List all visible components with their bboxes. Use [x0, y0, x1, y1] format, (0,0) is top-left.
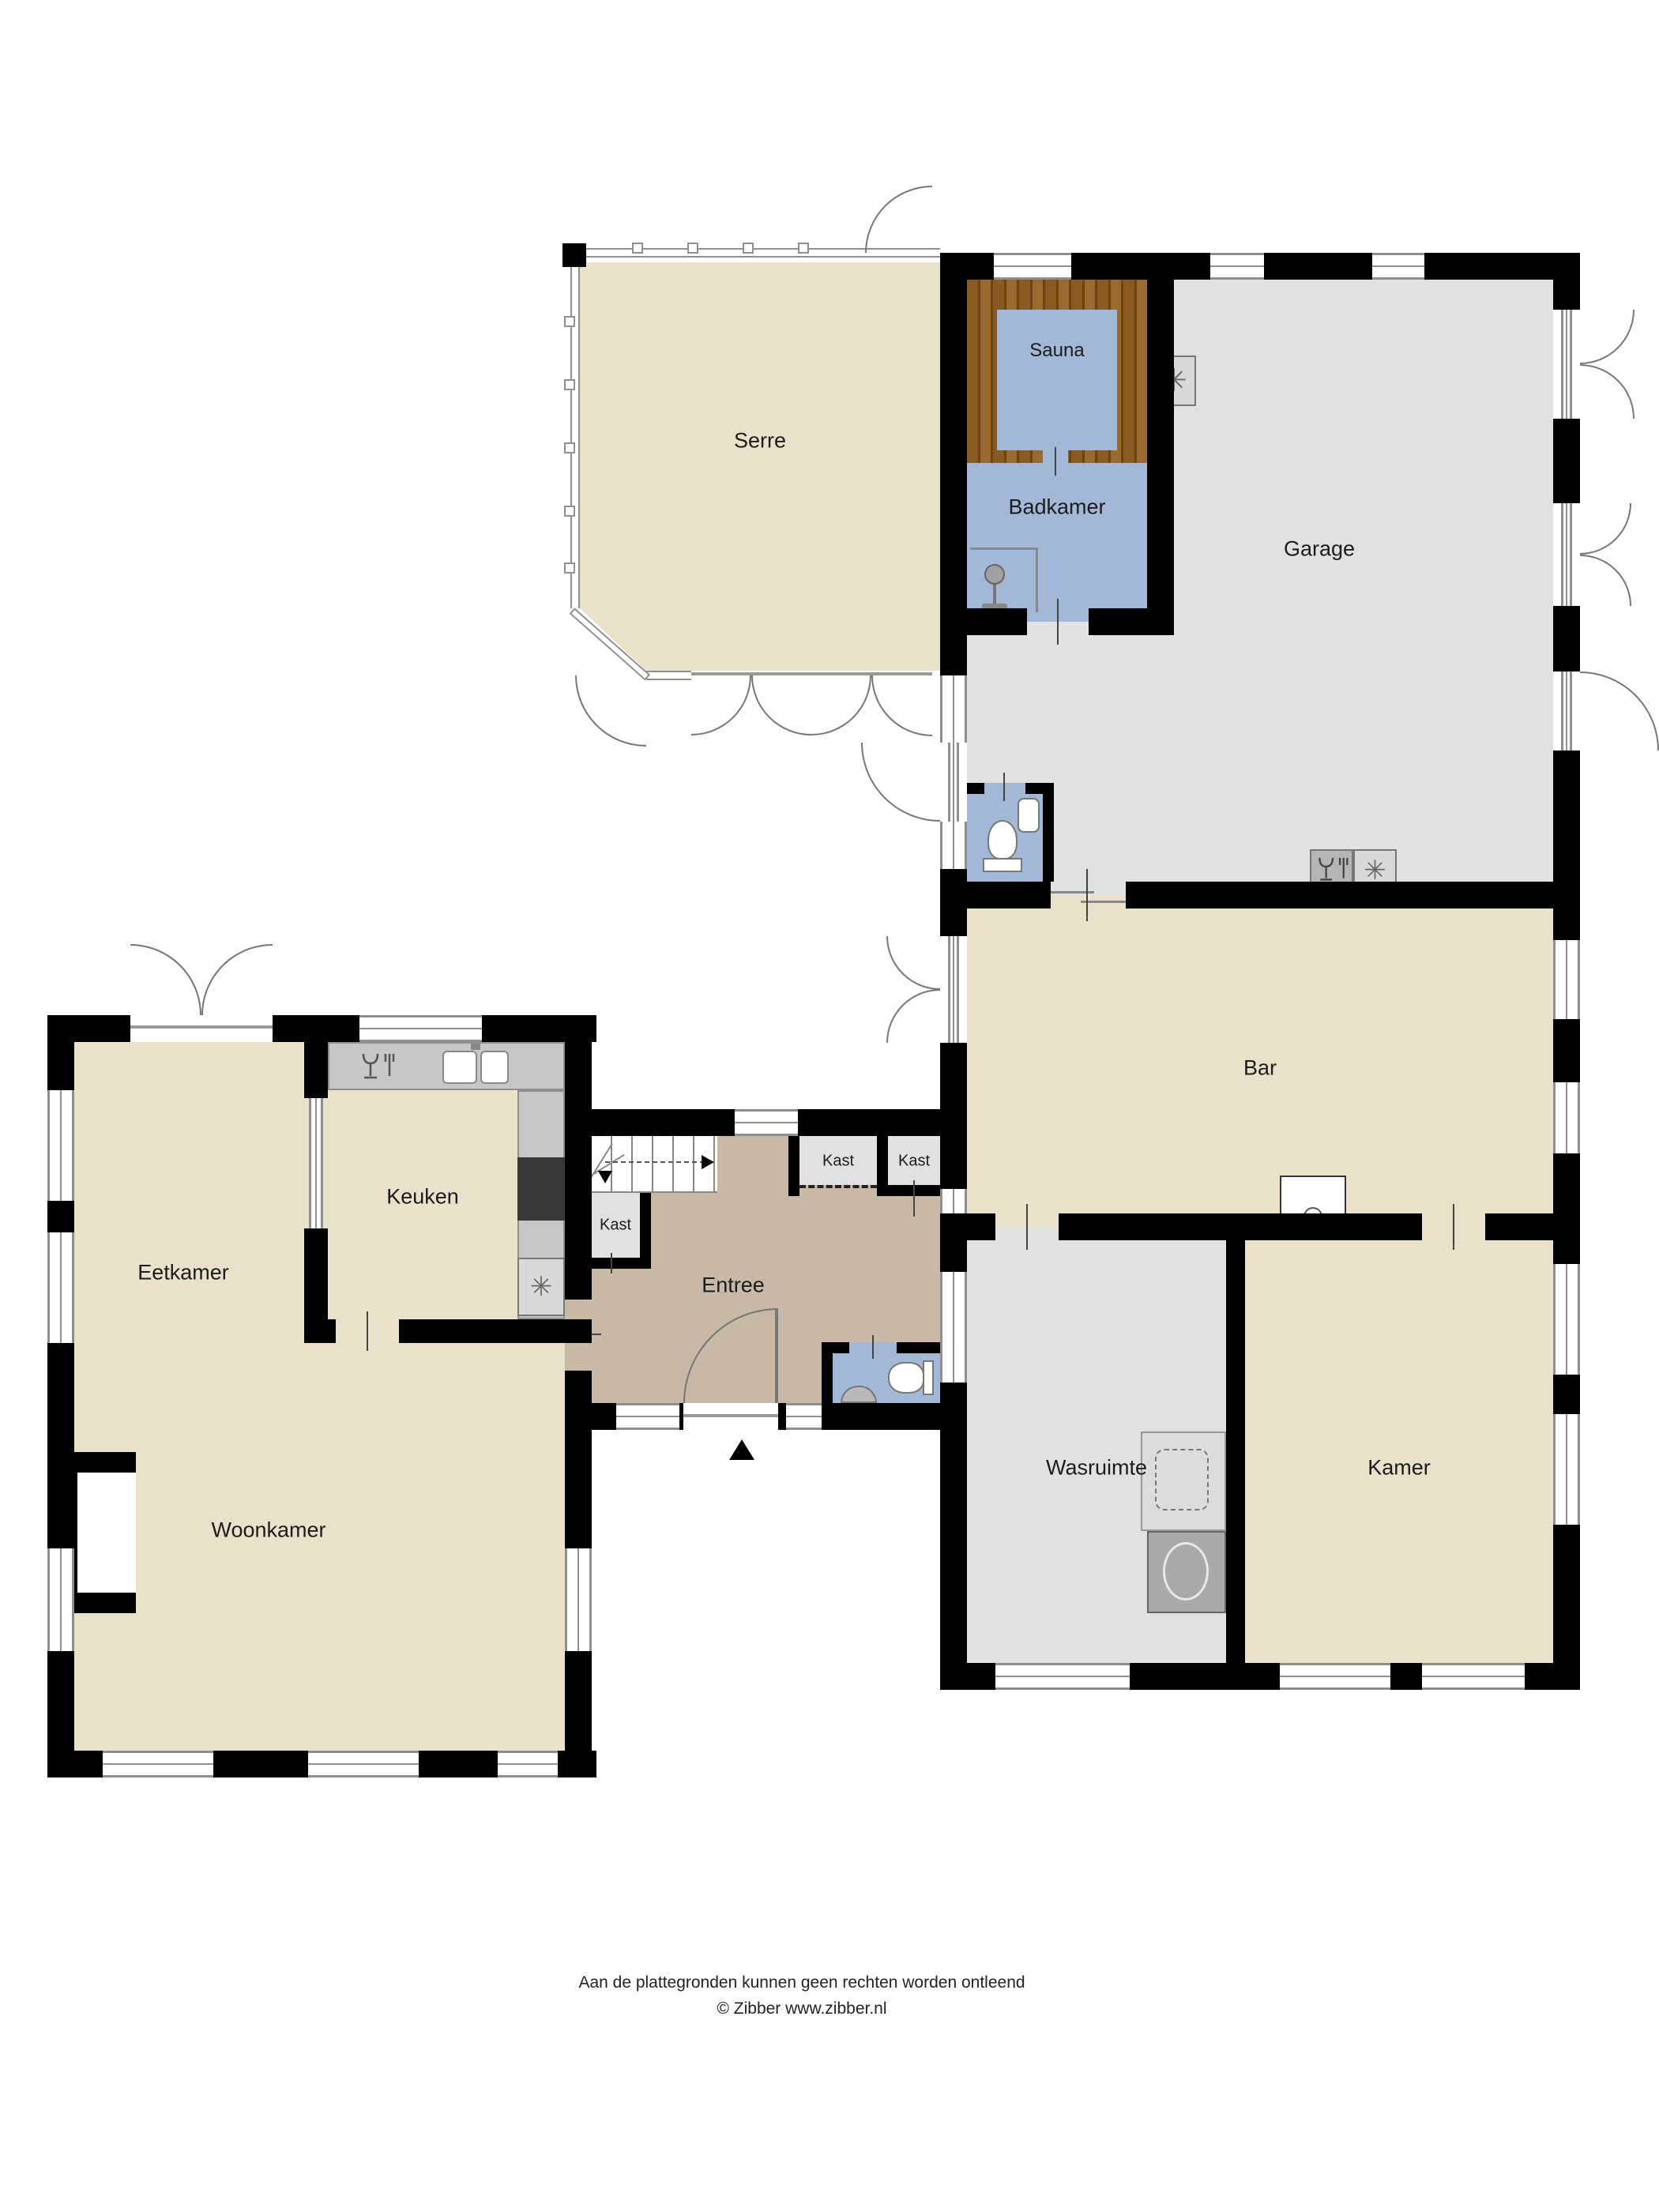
footer-line1: Aan de plattegronden kunnen geen rechten… [407, 1970, 1197, 1996]
wall [1553, 908, 1580, 940]
door-arc [861, 743, 940, 822]
window [1553, 1414, 1580, 1525]
wall [592, 1258, 651, 1269]
room-label-badkamer: Badkamer [1008, 495, 1105, 520]
wall [1059, 1213, 1422, 1240]
wall [822, 1403, 940, 1430]
door-arc [871, 675, 932, 736]
kitchen-sink-icon [442, 1051, 477, 1084]
toilet-icon [987, 820, 1018, 860]
toilet-icon [923, 1360, 934, 1395]
front-door-threshold [683, 1414, 778, 1417]
snowflake-icon: ✳ [1364, 857, 1386, 884]
wall [1043, 783, 1054, 882]
window [47, 1090, 74, 1201]
serre-mullion [564, 316, 575, 327]
wall [778, 1403, 786, 1430]
wall [940, 1663, 995, 1690]
window [1210, 253, 1264, 280]
door-glass [948, 743, 959, 822]
wall [1553, 1240, 1580, 1264]
wall [304, 1319, 336, 1343]
window [103, 1751, 213, 1777]
interior-window [309, 1098, 323, 1228]
toilet-icon [983, 858, 1022, 872]
door-tick [913, 1180, 915, 1217]
wall [1553, 419, 1580, 503]
window [1280, 1663, 1390, 1690]
door-tick [1055, 447, 1056, 476]
wall [967, 783, 984, 794]
wall [833, 1342, 849, 1353]
wall [1089, 608, 1147, 635]
wall [47, 1015, 130, 1042]
serre-mullion [743, 243, 754, 254]
serre-corner-post [562, 243, 586, 267]
kast-dashed-front [799, 1185, 877, 1188]
window [1372, 253, 1424, 280]
shower-icon [993, 585, 996, 605]
footer-line2: © Zibber www.zibber.nl [407, 1996, 1197, 2022]
room-sauna-floor [997, 310, 1117, 450]
room-label-kast-hall-left: Kast [822, 1153, 854, 1171]
serre-mullion [687, 243, 698, 254]
window [498, 1751, 558, 1777]
door-arc [886, 989, 940, 1043]
door-arc [130, 944, 201, 1015]
door-tick [872, 1335, 874, 1359]
wall [1485, 1213, 1580, 1240]
door-arc [1580, 364, 1635, 419]
wall [213, 1751, 308, 1777]
kitchen-sink-icon [480, 1051, 509, 1084]
serre-mullion [798, 243, 809, 254]
stairs-direction-arrow [598, 1171, 612, 1183]
wall [1553, 253, 1580, 310]
sink-icon [1018, 798, 1040, 833]
wall [640, 1193, 651, 1258]
wall [565, 1371, 592, 1403]
wall [1130, 1663, 1280, 1690]
snowflake-icon: ✳ [530, 1273, 553, 1300]
room-label-bar: Bar [1243, 1056, 1277, 1081]
window [47, 1548, 74, 1651]
door-arc [751, 675, 811, 735]
wall [304, 1042, 328, 1098]
room-label-entree: Entree [702, 1273, 765, 1298]
wall [1553, 606, 1580, 671]
door-arc [811, 675, 871, 735]
wall [592, 1109, 735, 1136]
wall [1553, 1375, 1580, 1414]
serre-mullion [632, 243, 643, 254]
wall [940, 908, 967, 936]
wall [565, 1651, 592, 1777]
entrance-marker-arrow [729, 1439, 754, 1460]
room-label-woonkamer: Woonkamer [211, 1518, 325, 1543]
wall [399, 1319, 592, 1343]
wall [1390, 1663, 1422, 1690]
wall [940, 253, 967, 675]
window [940, 1272, 967, 1382]
room-label-sauna: Sauna [1029, 340, 1084, 362]
wall [565, 1109, 592, 1300]
window [994, 253, 1071, 280]
room-label-kast-hall-right: Kast [898, 1153, 930, 1171]
wall [273, 1015, 359, 1042]
door-arc [201, 944, 273, 1015]
wall [419, 1751, 498, 1777]
wall [1226, 1240, 1245, 1663]
dishwasher-icon [357, 1049, 397, 1085]
wall [565, 1042, 592, 1109]
window [565, 1548, 592, 1651]
door-arc [886, 936, 940, 990]
shower-icon [984, 564, 1005, 585]
opening-patch [984, 783, 1025, 794]
room-label-eetkamer: Eetkamer [137, 1261, 229, 1285]
wall [940, 1043, 967, 1189]
wall [1553, 1019, 1580, 1082]
wall [877, 1136, 888, 1196]
wall [940, 1382, 967, 1690]
serre-glass-wall [646, 671, 691, 680]
staircase-walkline [605, 1161, 705, 1163]
serre-mullion [564, 442, 575, 453]
door-arc [1580, 555, 1631, 606]
window [1553, 1082, 1580, 1153]
wall [798, 1109, 940, 1136]
door-leaf [775, 1308, 778, 1403]
wall [940, 1240, 967, 1272]
door-tick [1086, 869, 1088, 921]
window [1422, 1663, 1525, 1690]
french-door-line [130, 1025, 273, 1029]
window [940, 675, 967, 743]
serre-mullion [564, 379, 575, 390]
wall [47, 1042, 74, 1090]
room-label-garage: Garage [1284, 537, 1355, 562]
window [359, 1015, 482, 1042]
wall [1147, 280, 1174, 635]
wall [47, 1751, 103, 1777]
window [1553, 1264, 1580, 1375]
door-tick [1453, 1204, 1454, 1250]
room-label-keuken: Keuken [386, 1185, 459, 1209]
faucet-icon [471, 1044, 480, 1050]
wall [940, 882, 1051, 908]
wall [1553, 1525, 1580, 1690]
window [47, 1232, 74, 1343]
wall [822, 1342, 833, 1403]
door-arc [691, 675, 751, 735]
room-serre-floor [580, 262, 940, 671]
wall [940, 1213, 995, 1240]
wall [47, 1343, 74, 1548]
laundry-basin-icon [1155, 1449, 1209, 1510]
door-arc [1580, 503, 1631, 555]
wall [897, 1342, 940, 1353]
room-label-kast-stairs: Kast [600, 1217, 631, 1235]
stairs-direction-arrow [702, 1155, 714, 1169]
wall [788, 1136, 799, 1196]
window [1553, 940, 1580, 1019]
washing-machine-icon [1163, 1542, 1209, 1601]
window [995, 1663, 1130, 1690]
door-tick [1057, 599, 1059, 645]
door-tick [1003, 773, 1005, 801]
room-label-kamer: Kamer [1367, 1456, 1431, 1480]
door-tick [611, 1253, 612, 1273]
door-tick [367, 1311, 368, 1351]
stove-icon [517, 1157, 565, 1221]
window [940, 822, 967, 869]
footer-disclaimer: Aan de plattegronden kunnen geen rechten… [407, 1970, 1197, 2022]
serre-mullion [564, 506, 575, 517]
wall [967, 608, 1027, 635]
window [735, 1109, 798, 1136]
shower-enclosure [970, 547, 1038, 612]
serre-glass-wall [570, 262, 580, 608]
wall [482, 1015, 596, 1042]
door-arc [575, 675, 646, 747]
window [786, 1403, 822, 1430]
room-label-wasruimte: Wasruimte [1046, 1456, 1147, 1480]
serre-mullion [564, 562, 575, 574]
room-label-serre: Serre [734, 429, 786, 453]
window [616, 1403, 679, 1430]
door-arc [1580, 671, 1659, 750]
wall [47, 1201, 74, 1232]
room-garage-floor [1174, 280, 1553, 882]
door-arc [865, 186, 932, 253]
wall [565, 1403, 592, 1548]
wall [1126, 882, 1580, 908]
room-kamer-floor [1245, 1240, 1553, 1663]
door-tick [1026, 1204, 1028, 1250]
floorplan: ✳ ✳ ✳ [0, 0, 1659, 2212]
door-arc [1580, 310, 1635, 364]
door-glass [1561, 310, 1572, 419]
fridge-freezer-icon: ✳ [517, 1258, 565, 1316]
door-glass [1561, 503, 1572, 606]
fireplace-niche [77, 1473, 136, 1593]
window [308, 1751, 419, 1777]
door-glass [1561, 671, 1572, 750]
toilet-icon [888, 1362, 924, 1394]
door-glass [948, 936, 959, 1043]
